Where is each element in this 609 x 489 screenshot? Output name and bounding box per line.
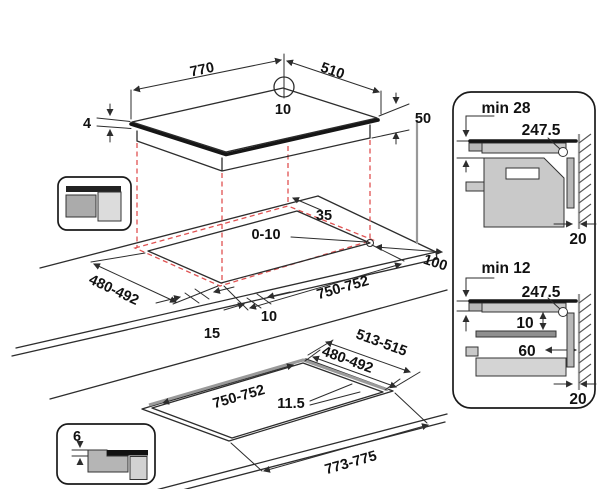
oven-bracket (466, 182, 484, 191)
rear-spacer (567, 158, 574, 208)
rear-spacer (567, 313, 574, 367)
dim-cable-position-bottom: 247.5 (522, 284, 561, 301)
hob-top-view (97, 54, 409, 171)
dim-rear-distance: 35 (316, 208, 332, 224)
hob-body-section (482, 303, 566, 312)
cable-outlet (559, 308, 568, 317)
worktop-dimensions (91, 198, 442, 310)
hob-glass-icon (66, 186, 121, 192)
dim-hob-gap: 10 (516, 315, 533, 332)
dim-hob-width: 770 (189, 60, 216, 81)
hob-glass-top (132, 88, 377, 152)
surface-mount-icon-box (58, 177, 131, 230)
dim-ledge-width: 11.5 (277, 396, 304, 412)
dim-min-shelf-clearance: min 12 (481, 260, 530, 277)
flush-glass-icon (107, 450, 148, 456)
cable-outlet (559, 148, 568, 157)
dim-side-overhang: 10 (261, 309, 277, 325)
side-section-panel (453, 92, 596, 408)
dim-recess-depth: 6 (73, 429, 81, 445)
dim-min-oven-clearance: min 28 (481, 100, 530, 117)
flush-mount-icon-box (57, 424, 155, 484)
projection-lines (137, 140, 370, 284)
hob-body-section (482, 143, 566, 153)
hob-body-icon (130, 457, 147, 480)
cabinet-icon (66, 195, 96, 217)
dim-glass-thickness: 4 (83, 116, 91, 132)
cabinet-bracket (466, 347, 478, 356)
oven-vent (506, 168, 539, 179)
dim-flush-outer-width: 773-775 (323, 448, 379, 478)
worktop-cutout (148, 211, 370, 283)
dim-front-overhang: 15 (204, 326, 220, 342)
dim-side-clearance: 100 (421, 252, 449, 275)
dim-cable-position-top: 247.5 (522, 122, 561, 139)
dim-hob-height: 50 (415, 111, 431, 127)
dim-hole-offset: 0-10 (251, 227, 280, 243)
dim-cutout-depth: 480-492 (86, 272, 141, 309)
drawer-section (476, 358, 566, 376)
worktop-icon (98, 192, 121, 221)
installation-diagram-page: 770 510 10 4 50 35 0-10 100 480-492 750-… (0, 0, 609, 489)
dim-wall-gap-top: 20 (569, 231, 586, 248)
installation-diagram: 770 510 10 4 50 35 0-10 100 480-492 750-… (0, 0, 609, 489)
fixing-clamp (469, 303, 482, 311)
fixing-clamp (469, 143, 482, 151)
dim-shelf-setback: 60 (518, 343, 535, 360)
dim-wall-gap-bottom: 20 (569, 391, 586, 408)
hob-glass-edge (131, 120, 378, 155)
dim-hole-diameter: 10 (275, 102, 291, 118)
dim-hob-depth: 510 (318, 60, 346, 83)
